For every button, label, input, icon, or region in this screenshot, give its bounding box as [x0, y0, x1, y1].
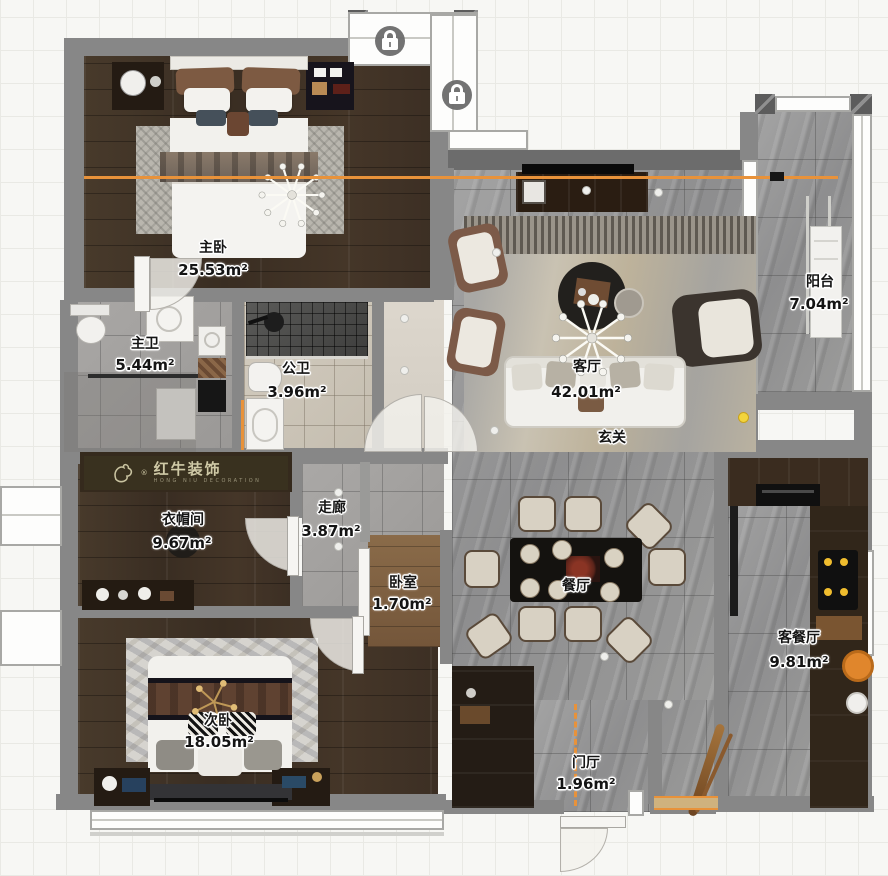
balcony-window — [775, 96, 851, 112]
window-mullion — [92, 819, 442, 821]
room-label-dining-room[interactable]: 餐厅 — [562, 575, 590, 595]
bed-trim — [154, 798, 288, 802]
room-label-public-bathroom[interactable]: 公卫 — [282, 358, 310, 378]
burner — [840, 588, 848, 596]
lock-icon[interactable] — [442, 80, 472, 110]
room-label-cloakroom[interactable]: 衣帽间 — [162, 509, 204, 529]
decor-dish[interactable] — [150, 76, 161, 87]
lock-icon[interactable] — [375, 26, 405, 56]
bed-pillow — [227, 112, 249, 136]
wall — [740, 112, 758, 160]
room-area-balcony[interactable]: 7.04m² — [789, 295, 848, 313]
window — [0, 610, 62, 666]
toilet[interactable] — [76, 316, 106, 344]
dining-chair[interactable] — [518, 496, 556, 532]
decor-item — [460, 706, 490, 724]
laptop — [122, 778, 146, 792]
room-label-bedroom-nook[interactable]: 卧室 — [389, 572, 417, 592]
spotlight — [492, 248, 501, 257]
spotlight — [654, 188, 663, 197]
dining-chair[interactable] — [464, 550, 500, 588]
door-swing-arc — [560, 828, 608, 872]
room-label-entry-hall[interactable]: 门厅 — [572, 752, 600, 772]
wall — [64, 38, 84, 300]
registered-mark: ® — [141, 469, 148, 477]
window-mullion — [2, 514, 60, 516]
dish — [578, 288, 586, 296]
bowl-white — [846, 692, 868, 714]
spotlight — [400, 314, 409, 323]
dish — [96, 588, 109, 601]
wall-corner-post — [755, 94, 775, 114]
spotlight — [490, 426, 499, 435]
dining-chair[interactable] — [564, 606, 602, 642]
room-label-master-bathroom[interactable]: 主卫 — [131, 333, 159, 353]
decor-item — [312, 82, 327, 95]
dining-chair[interactable] — [648, 548, 686, 586]
wall — [360, 462, 370, 542]
bull-logo-icon — [111, 462, 135, 484]
wall — [64, 38, 356, 56]
spotlight — [400, 366, 409, 375]
shower-bar — [88, 374, 198, 378]
lamp — [102, 776, 117, 791]
room-label-corridor[interactable]: 走廊 — [318, 497, 346, 517]
door-leaf[interactable] — [134, 256, 150, 312]
spotlight — [334, 488, 343, 497]
wall-corner-post — [850, 94, 872, 114]
plate — [552, 540, 572, 560]
burner — [824, 558, 832, 566]
wall — [440, 530, 452, 664]
rug-border — [464, 216, 756, 254]
dining-chair[interactable] — [564, 496, 602, 532]
section-line — [84, 176, 838, 179]
decor-tray[interactable] — [120, 70, 146, 96]
room-label-master-bedroom[interactable]: 主卧 — [199, 237, 227, 257]
room-area-entry-hall[interactable]: 1.96m² — [556, 775, 615, 793]
decor-item — [466, 688, 476, 698]
room-label-balcony[interactable]: 阳台 — [806, 271, 834, 291]
burner — [824, 588, 832, 596]
sofa-pillow — [643, 363, 675, 391]
bath-mat — [198, 358, 226, 378]
door-sidelight — [628, 790, 644, 816]
room-label-kitchen-dining[interactable]: 客餐厅 — [778, 627, 820, 647]
dish — [118, 590, 128, 600]
spotlight — [334, 542, 343, 551]
window-mullion — [861, 116, 863, 390]
door-mat — [654, 796, 718, 810]
counter-edge — [730, 506, 738, 616]
spotlight — [664, 700, 673, 709]
cutting-board — [816, 616, 862, 640]
plate — [520, 578, 540, 598]
bay-window — [430, 14, 478, 132]
threshold-line — [241, 400, 244, 450]
hood-vent — [762, 490, 814, 493]
watermark-subtitle: HONG NIU DECORATION — [154, 479, 262, 484]
plate — [520, 544, 540, 564]
room-label-foyer[interactable]: 玄关 — [598, 427, 626, 447]
door-leaf[interactable] — [352, 616, 364, 674]
floor-kitchen — [728, 490, 812, 808]
washer-door — [204, 332, 220, 348]
window — [448, 130, 528, 150]
room-label-second-bedroom[interactable]: 次卧 — [204, 710, 232, 730]
bath-cabinet[interactable] — [198, 380, 226, 412]
decor-item — [314, 68, 326, 77]
chandelier-icon[interactable] — [255, 158, 329, 232]
toilet-tank — [70, 304, 110, 316]
rack-bar — [814, 240, 838, 242]
room-area-bedroom-nook[interactable]: 1.70m² — [372, 595, 431, 613]
bed-pillow — [184, 88, 230, 112]
bed-pillow — [196, 110, 226, 126]
tv[interactable] — [522, 164, 634, 174]
window-mullion — [452, 16, 454, 130]
sink-basin — [156, 306, 182, 332]
dining-chair[interactable] — [518, 606, 556, 642]
room-area-master-bedroom[interactable]: 25.53m² — [178, 261, 248, 279]
sink-basin — [252, 408, 278, 442]
drying-pole — [806, 196, 809, 334]
room-area-cloakroom[interactable]: 9.67m² — [152, 534, 211, 552]
marker-dot — [738, 412, 749, 423]
section-marker — [770, 172, 784, 181]
room-area-master-bathroom[interactable]: 5.44m² — [115, 356, 174, 374]
spotlight — [582, 186, 591, 195]
burner — [840, 558, 848, 566]
room-area-second-bedroom[interactable]: 18.05m² — [184, 733, 254, 751]
decor-item — [330, 68, 342, 77]
window — [0, 486, 62, 546]
plate — [600, 582, 620, 602]
door-leaf[interactable] — [287, 516, 299, 576]
plate — [604, 548, 624, 568]
range-hood[interactable] — [756, 484, 820, 506]
spotlight — [600, 652, 609, 661]
shower-tray — [156, 388, 196, 440]
sofa-pillow — [511, 363, 543, 391]
room-area-kitchen-dining[interactable]: 9.81m² — [769, 653, 828, 671]
room-area-corridor[interactable]: 3.87m² — [301, 522, 360, 540]
foyer-cabinet[interactable] — [452, 666, 534, 808]
room-area-public-bathroom[interactable]: 3.96m² — [267, 383, 326, 401]
rack-bar — [814, 258, 838, 260]
bed-pillow — [246, 88, 292, 112]
bowl-orange — [842, 650, 874, 682]
window-sill — [90, 832, 444, 836]
wall — [648, 700, 662, 804]
wall — [740, 392, 872, 410]
watermark: ® 红牛装饰 HONG NIU DECORATION — [84, 456, 288, 490]
decor-item — [160, 591, 174, 601]
floor-plan-canvas: ® 红牛装饰 HONG NIU DECORATION — [0, 0, 888, 876]
room-area-living-room[interactable]: 42.01m² — [551, 383, 621, 401]
armchair-cushion — [697, 297, 755, 358]
dish — [138, 587, 151, 600]
bed-pillow — [248, 110, 278, 126]
decor-frame — [522, 180, 546, 204]
lock-keyhole — [389, 42, 391, 47]
entrance-door-leaf[interactable] — [560, 816, 626, 828]
room-label-living-room[interactable]: 客厅 — [573, 356, 601, 376]
decor-item — [312, 772, 322, 782]
watermark-brand: 红牛装饰 — [154, 462, 262, 477]
decor-item — [333, 84, 350, 94]
tablet — [282, 776, 306, 788]
lock-keyhole — [456, 96, 458, 101]
